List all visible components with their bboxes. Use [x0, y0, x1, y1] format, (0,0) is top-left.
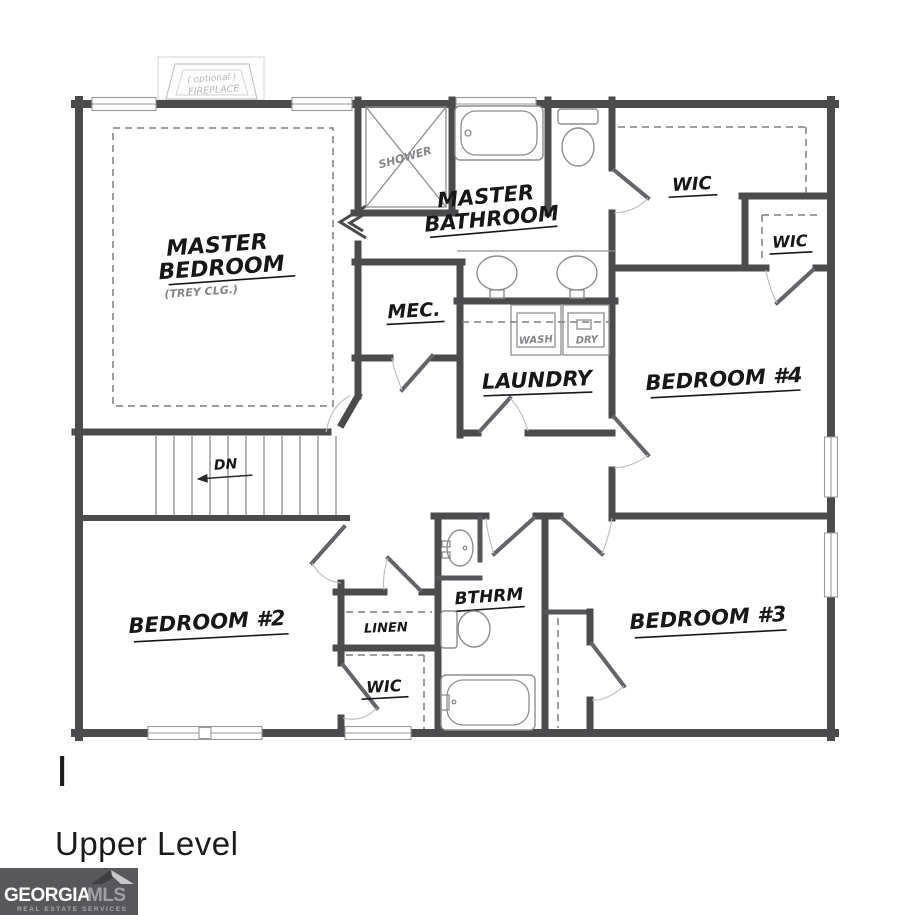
toilet-fixture: [558, 109, 598, 166]
bedroom2-door: [312, 527, 344, 583]
vanity-double-sink: [457, 251, 615, 298]
wic-right-door: [766, 270, 813, 303]
shower-label: SHOWER: [377, 144, 433, 172]
washer-label: WASH: [519, 334, 554, 347]
window: [148, 727, 262, 740]
stairs-down-label: DN: [195, 455, 253, 483]
room-wic-master: WIC: [618, 127, 806, 197]
georgia-mls-logo: GEORGIA MLS REAL ESTATE SERVICES: [0, 868, 138, 915]
bathtub-fixture: [455, 106, 543, 160]
room-laundry: WASH DRY LAUNDRY: [462, 305, 610, 396]
wic-master-door: [614, 170, 648, 213]
bedroom4-label: BEDROOM #4: [645, 363, 803, 395]
window: [92, 98, 156, 111]
logo-tagline: REAL ESTATE SERVICES: [17, 906, 128, 913]
room-bedroom-4: BEDROOM #4: [645, 363, 803, 398]
caption-mark: I: [56, 747, 68, 796]
wic-master-label: WIC: [672, 173, 714, 196]
staircase: DN: [156, 436, 336, 515]
bedroom4-door: [614, 417, 648, 468]
room-master-bedroom: MASTER BEDROOM (TREY CLG.): [113, 128, 333, 406]
linen-label: LINEN: [364, 620, 408, 637]
bedroom3-door: [562, 518, 612, 554]
level-title: Upper Level: [55, 825, 238, 862]
bathroom-label: BTHRM: [454, 585, 524, 610]
room-wic-right: WIC: [762, 215, 822, 262]
linen-door: [384, 558, 421, 590]
washer-fixture: WASH: [511, 305, 561, 355]
room-bedroom-2: BEDROOM #2: [128, 606, 289, 642]
floor-plan-drawing: ( optional ) FIREPLACE: [0, 0, 900, 915]
doors: [312, 170, 813, 719]
fireplace-bumpout: ( optional ) FIREPLACE: [158, 57, 264, 100]
window: [825, 437, 838, 497]
mec-label: MEC.: [387, 299, 441, 324]
room-wic-bedroom2: WIC: [346, 655, 424, 729]
mec-door: [392, 356, 432, 390]
shower-fixture: SHOWER: [366, 107, 446, 207]
window: [345, 727, 411, 740]
laundry-label: LAUNDRY: [481, 366, 594, 394]
window: [825, 533, 838, 597]
svg-text:DN: DN: [213, 456, 238, 474]
room-mec: MEC.: [385, 298, 444, 324]
toilet-fixture: [441, 611, 490, 648]
room-bathroom: BTHRM: [441, 530, 535, 730]
dryer-label: DRY: [575, 334, 600, 346]
bathroom-door: [486, 518, 534, 554]
bedroom3-closet-door: [592, 644, 624, 700]
floor-plan-page: ( optional ) FIREPLACE: [0, 0, 900, 915]
room-linen: LINEN: [346, 612, 432, 637]
logo-brand-text: GEORGIA: [4, 885, 91, 906]
down-arrow-icon: [196, 474, 208, 484]
dryer-fixture: DRY: [563, 305, 609, 355]
bedroom3-label: BEDROOM #3: [629, 602, 787, 634]
room-master-bathroom: SHOWER MASTER BATHROOM: [366, 106, 615, 298]
trey-ceiling-note: (TREY CLG.): [164, 283, 238, 301]
wic-bedroom2-label: WIC: [366, 676, 403, 697]
sink-fixture: [442, 530, 473, 566]
window: [292, 98, 352, 111]
bathtub-fixture: [441, 675, 535, 730]
laundry-door: [480, 398, 528, 431]
logo-suffix-text: MLS: [87, 885, 126, 906]
bedroom2-label: BEDROOM #2: [128, 606, 286, 638]
wic-right-label: WIC: [772, 231, 809, 252]
